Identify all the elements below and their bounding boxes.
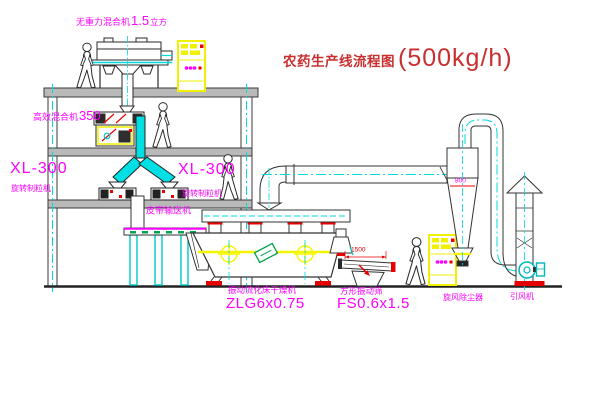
granulator-left-unit xyxy=(99,182,136,200)
dryer-top-ports xyxy=(208,222,336,233)
worker-figure-second-floor xyxy=(153,103,171,148)
label-cyclone: 旋风除尘器 xyxy=(443,294,483,302)
mixer-downpipe xyxy=(136,116,145,158)
label-granulator-right-model: XL-300 xyxy=(178,162,236,178)
vibrating-screen xyxy=(330,229,396,286)
label-granulator-left-name: 旋转制粒机 xyxy=(11,185,51,193)
fluid-bed-dryer xyxy=(193,233,343,286)
diagram-title: 农药生产线流程图 (500kg/h) xyxy=(283,46,513,71)
y-splitter-duct xyxy=(113,157,175,184)
label-granulator-left-model: XL-300 xyxy=(10,161,68,177)
dryer-exhaust-duct xyxy=(202,164,452,222)
worker-figure-top-floor xyxy=(77,43,95,88)
label-belt-conveyor: 皮带输送机 xyxy=(146,206,191,215)
floor-slab-top xyxy=(44,88,258,97)
label-screen-model: FS0.6x1.5 xyxy=(337,296,410,311)
label-high-efficiency-mixer: 高效混合机 350 xyxy=(33,109,101,122)
label-dryer-model: ZLG6x0.75 xyxy=(226,296,305,311)
granulator-discharge-chute xyxy=(131,196,144,228)
gravity-free-mixer xyxy=(88,36,172,110)
title-text: 农药生产线流程图 xyxy=(283,55,395,69)
label-gravity-free-mixer: 无重力混合机 1.5 立方 xyxy=(76,14,167,27)
pesticide-line-flow-diagram: 农药生产线流程图 (500kg/h) 无重力混合机 1.5 立方 高效混合机 3… xyxy=(0,0,600,403)
worker-figure-ground xyxy=(406,238,425,285)
control-cabinet-top xyxy=(178,41,205,91)
floor-slab-middle xyxy=(48,148,252,156)
label-granulator-right-name: 旋转制粒机 xyxy=(182,190,222,198)
dimension-cyclone-diameter: 800 xyxy=(455,177,466,184)
control-cabinet-ground xyxy=(429,235,456,285)
label-induced-fan: 引风机 xyxy=(510,293,534,301)
dimension-screen-length: 1500 xyxy=(351,246,365,253)
title-capacity: (500kg/h) xyxy=(398,46,513,71)
label-dryer-name: 振动流化床干燥机 xyxy=(228,286,296,295)
